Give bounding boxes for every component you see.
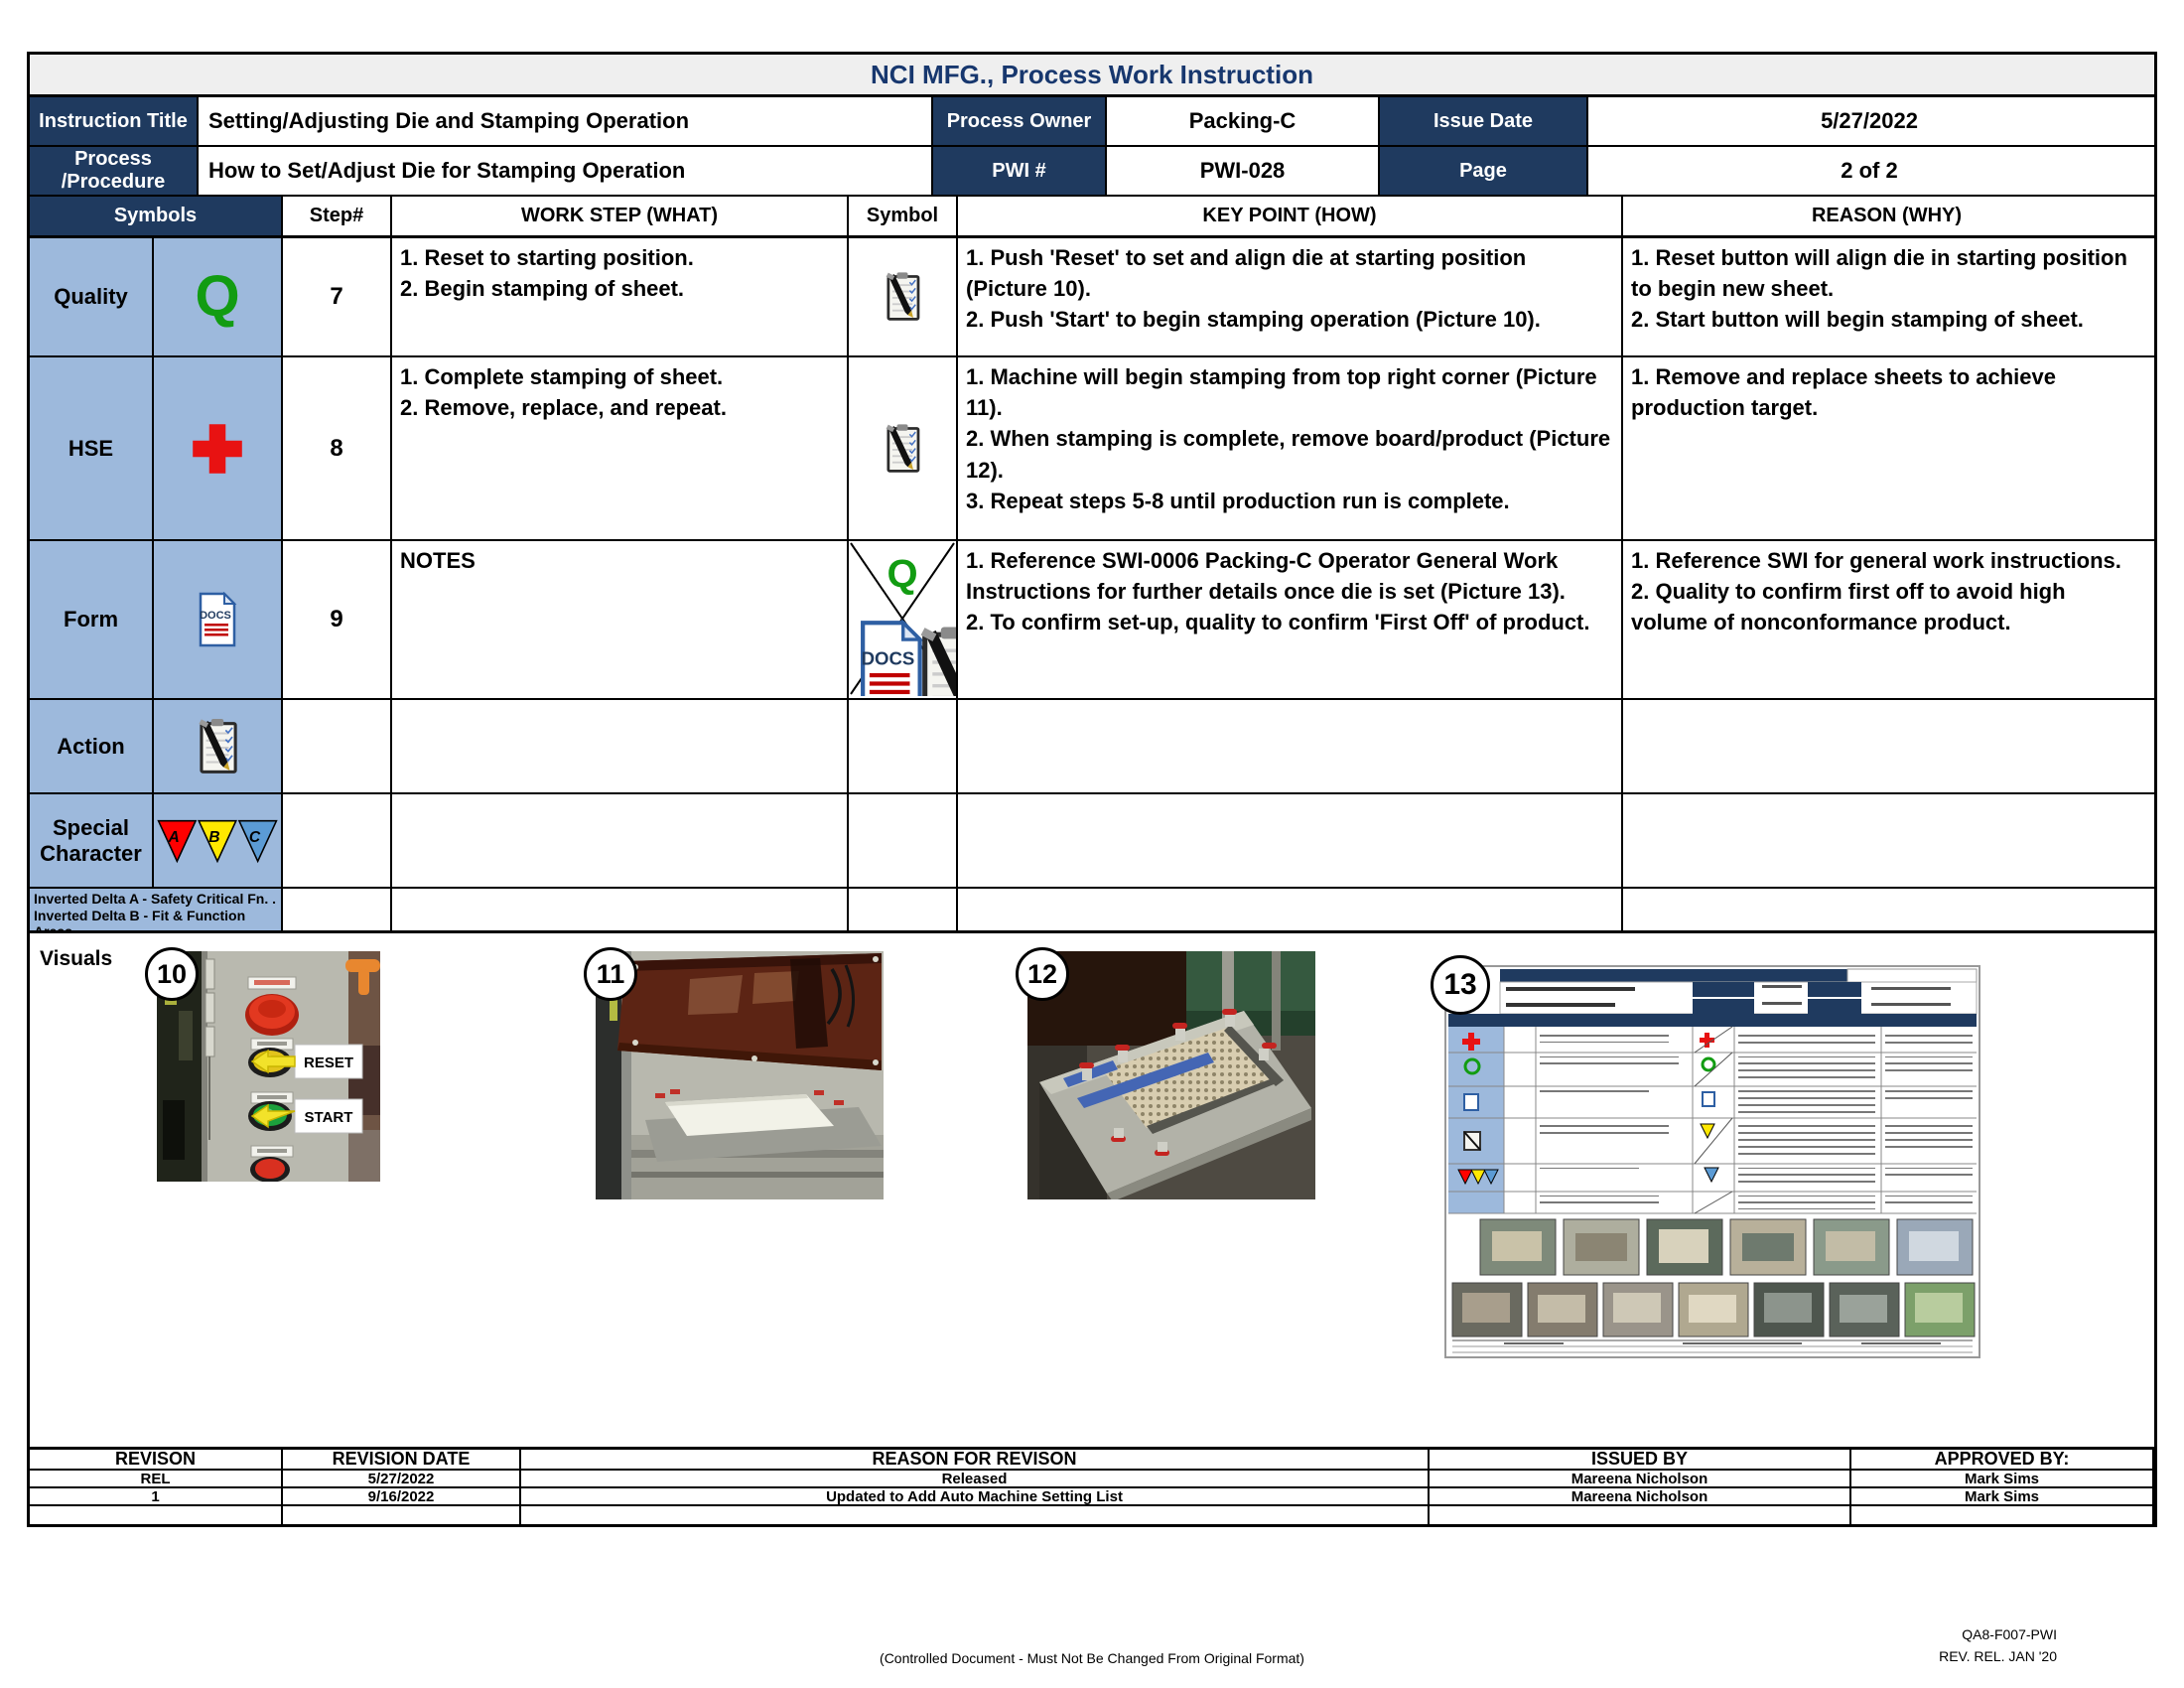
picture-10-badge: 10 [145, 947, 199, 1001]
pwi-document: NCI MFG., Process Work Instruction Instr… [27, 52, 2157, 1527]
docs-document-icon [154, 541, 283, 698]
issue-date-value: 5/27/2022 [1588, 97, 2150, 145]
amber-cover [617, 953, 882, 1070]
reason-text: 1. Reset button will align die in starti… [1631, 242, 2142, 336]
key-point-text: 1. Reference SWI-0006 Packing-C Operator… [966, 545, 1613, 638]
visuals-section: Visuals 10 [30, 933, 2154, 1450]
legend-line-b: Inverted Delta B - Fit & Function Areas [34, 908, 277, 930]
step-number: 9 [283, 541, 392, 698]
picture-13-badge: 13 [1431, 955, 1490, 1015]
emergency-stop-button [245, 977, 299, 1036]
empty-cell [849, 794, 958, 887]
form-code-block: QA8-F007-PWI REV. REL. JAN '20 [1939, 1624, 2057, 1667]
approved-by-col-header: APPROVED BY: [1851, 1450, 2154, 1469]
picture-11-badge: 11 [584, 947, 637, 1001]
process-owner-label: Process Owner [933, 97, 1107, 145]
legend-line-a: Inverted Delta A - Safety Critical Fn. . [34, 891, 276, 908]
inverted-delta-triangles-icon: A B C [154, 794, 283, 887]
revision-table: REVISON REVISION DATE REASON FOR REVISON… [30, 1450, 2154, 1524]
revision-id: 1 [30, 1488, 283, 1504]
clipboard-pen-icon [882, 271, 923, 323]
symbol-row-label-form: Form [30, 541, 154, 698]
empty-cell [958, 700, 1623, 792]
col-header-symbol: Symbol [849, 197, 958, 235]
revision-header-row: REVISON REVISION DATE REASON FOR REVISON… [30, 1450, 2154, 1471]
step-number: 7 [283, 238, 392, 355]
process-procedure-value: How to Set/Adjust Die for Stamping Opera… [199, 147, 933, 195]
swi-document-thumbnail [1444, 965, 1980, 1358]
symbol-row-special-character: Special Character A B C [30, 794, 2154, 889]
stamping-machine-photo [596, 951, 884, 1199]
header-row-2: Process /Procedure How to Set/Adjust Die… [30, 147, 2154, 197]
reset-annotation: RESET [252, 1045, 362, 1078]
empty-cell [1623, 889, 2150, 930]
revision-reason [521, 1506, 1430, 1524]
step-number: 8 [283, 357, 392, 539]
revision-date-col-header: REVISION DATE [283, 1450, 521, 1469]
reset-annotation-label: RESET [304, 1055, 353, 1071]
delta-b-letter: B [208, 828, 219, 845]
issued-by-col-header: ISSUED BY [1430, 1450, 1851, 1469]
work-step-text: 1. Complete stamping of sheet. 2. Remove… [400, 361, 727, 423]
pwi-number-label: PWI # [933, 147, 1107, 195]
symbol-row-action: Action [30, 700, 2154, 794]
page: { "header": { "doc_title": "NCI MFG., Pr… [0, 0, 2184, 1688]
instruction-title-label: Instruction Title [30, 97, 199, 145]
quality-q-letter: Q [887, 552, 917, 596]
empty-cell [283, 794, 392, 887]
revision-approved-by [1851, 1506, 2154, 1524]
empty-cell [392, 700, 849, 792]
stamped-board-photo [1027, 951, 1315, 1199]
col-header-key-point: KEY POINT (HOW) [958, 197, 1623, 235]
empty-cell [849, 700, 958, 792]
visuals-label: Visuals [40, 947, 112, 971]
picture-13: 13 [1444, 965, 1980, 1358]
picture-10: 10 [157, 951, 380, 1182]
docs-document-icon [862, 623, 920, 696]
picture-12-badge: 12 [1016, 947, 1069, 1001]
header-row-1: Instruction Title Setting/Adjusting Die … [30, 97, 2154, 147]
column-header-row: Symbols Step# WORK STEP (WHAT) Symbol KE… [30, 197, 2154, 238]
picture-11: 11 [596, 951, 884, 1199]
quality-q-letter: Q [195, 268, 239, 326]
revision-date: 5/27/2022 [283, 1471, 521, 1486]
col-header-symbols: Symbols [30, 197, 283, 235]
step-row-9: Form 9 NOTES Q 1. Reference SWI-0006 Pac… [30, 541, 2154, 700]
symbol-row-label-hse: HSE [30, 357, 154, 539]
halt-button-photo [250, 1146, 293, 1182]
form-revision: REV. REL. JAN '20 [1939, 1646, 2057, 1668]
revision-approved-by: Mark Sims [1851, 1471, 2154, 1486]
crossed-out-symbols-icon: Q [849, 541, 956, 696]
first-aid-cross-icon [154, 357, 283, 539]
document-title: NCI MFG., Process Work Instruction [30, 55, 2154, 97]
empty-cell [392, 889, 849, 930]
empty-cell [283, 889, 392, 930]
delta-c-letter: C [249, 828, 261, 845]
revision-issued-by: Mareena Nicholson [1430, 1471, 1851, 1486]
symbol-row-label-quality: Quality [30, 238, 154, 355]
thumbnail-photo-strip-2 [1452, 1283, 1975, 1336]
empty-cell [958, 889, 1623, 930]
start-annotation-label: START [305, 1109, 353, 1126]
revision-approved-by: Mark Sims [1851, 1488, 2154, 1504]
reason-text: 1. Remove and replace sheets to achieve … [1631, 361, 2142, 423]
form-code: QA8-F007-PWI [1939, 1624, 2057, 1646]
revision-reason: Released [521, 1471, 1430, 1486]
revision-issued-by: Mareena Nicholson [1430, 1488, 1851, 1504]
revision-col-header: REVISON [30, 1450, 283, 1469]
revision-row: REL 5/27/2022 Released Mareena Nicholson… [30, 1471, 2154, 1488]
clipboard-pen-icon [882, 423, 923, 475]
revision-date: 9/16/2022 [283, 1488, 521, 1504]
inverted-delta-legend: Inverted Delta A - Safety Critical Fn. .… [30, 889, 283, 930]
instruction-title-value: Setting/Adjusting Die and Stamping Opera… [199, 97, 933, 145]
col-header-work-step: WORK STEP (WHAT) [392, 197, 849, 235]
revision-row: 1 9/16/2022 Updated to Add Auto Machine … [30, 1488, 2154, 1506]
step-symbol-cell [849, 357, 958, 539]
reason-text: 1. Reference SWI for general work instru… [1631, 545, 2142, 638]
symbol-row-label-special-character: Special Character [30, 794, 154, 887]
key-point-text: 1. Machine will begin stamping from top … [966, 361, 1613, 516]
revision-date [283, 1506, 521, 1524]
pwi-number-value: PWI-028 [1107, 147, 1380, 195]
clipboard-pen-icon [921, 628, 956, 696]
col-header-reason: REASON (WHY) [1623, 197, 2150, 235]
work-step-text: NOTES [400, 545, 476, 576]
clipboard-pen-icon [154, 700, 283, 792]
revision-reason: Updated to Add Auto Machine Setting List [521, 1488, 1430, 1504]
picture-12: 12 [1027, 951, 1315, 1199]
start-annotation: START [252, 1099, 362, 1133]
step-symbol-cell-crossed: Q [849, 541, 958, 698]
legend-row: Inverted Delta A - Safety Critical Fn. .… [30, 889, 2154, 933]
empty-cell [849, 889, 958, 930]
work-step-text: 1. Reset to starting position. 2. Begin … [400, 242, 694, 304]
empty-cell [1623, 700, 2150, 792]
key-point-text: 1. Push 'Reset' to set and align die at … [966, 242, 1613, 336]
reason-for-revision-col-header: REASON FOR REVISON [521, 1450, 1430, 1469]
controlled-document-notice: (Controlled Document - Must Not Be Chang… [27, 1650, 2157, 1666]
step-row-8: HSE 8 1. Complete stamping of sheet. 2. … [30, 357, 2154, 541]
empty-cell [1623, 794, 2150, 887]
page-label: Page [1380, 147, 1588, 195]
process-owner-value: Packing-C [1107, 97, 1380, 145]
empty-cell [392, 794, 849, 887]
revision-issued-by [1430, 1506, 1851, 1524]
revision-id: REL [30, 1471, 283, 1486]
empty-cell [283, 700, 392, 792]
quality-q-icon: Q [154, 238, 283, 355]
process-procedure-label: Process /Procedure [30, 147, 199, 195]
revision-row-empty [30, 1506, 2154, 1524]
page-value: 2 of 2 [1588, 147, 2150, 195]
step-row-7: Quality Q 7 1. Reset to starting positio… [30, 238, 2154, 357]
delta-a-letter: A [168, 828, 180, 845]
symbol-row-label-action: Action [30, 700, 154, 792]
step-symbol-cell [849, 238, 958, 355]
empty-cell [958, 794, 1623, 887]
revision-id [30, 1506, 283, 1524]
col-header-step: Step# [283, 197, 392, 235]
issue-date-label: Issue Date [1380, 97, 1588, 145]
